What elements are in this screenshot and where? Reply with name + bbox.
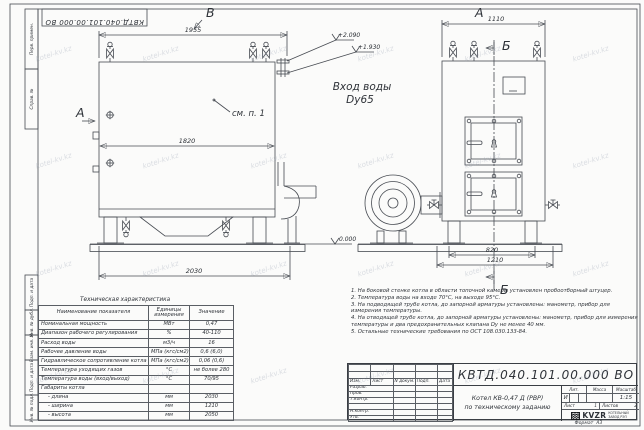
roof-valve-icon bbox=[107, 42, 114, 62]
spec-row: Температура воды (вход/выход)°С70/95 bbox=[39, 375, 234, 384]
spec-unit: м3/ч bbox=[149, 339, 190, 348]
frame-label: Инв. № дубл. bbox=[29, 308, 35, 337]
sheet-value: 1 bbox=[594, 404, 597, 409]
note-line: 5. Остальные технические требования по О… bbox=[351, 329, 638, 335]
spec-row: - длинамм2030 bbox=[39, 393, 234, 402]
side-view: 1110 820 1210 А Б Б bbox=[358, 5, 562, 297]
roof-valve-icon bbox=[471, 41, 478, 61]
scale-label: Масштаб bbox=[613, 386, 639, 394]
dim-side-top: 1110 bbox=[488, 15, 505, 23]
spec-unit: мм bbox=[149, 393, 190, 402]
spec-value: 16 bbox=[190, 339, 234, 348]
spec-value: 40-110 bbox=[190, 330, 234, 339]
note-line: 2. Температура воды на входе 70°С, на вы… bbox=[351, 295, 638, 301]
spec-value: 2030 bbox=[190, 393, 234, 402]
drawing-title: Котел КВ-0,47 Д (РВР) по техническому за… bbox=[453, 386, 561, 421]
frame-label: Справ. № bbox=[29, 88, 35, 109]
frame-label: Перв. примен. bbox=[29, 23, 35, 55]
spec-param: Гидравлическое сопротивление котла bbox=[39, 357, 149, 366]
lifting-lug-icon bbox=[106, 159, 114, 167]
dim-side-inner: 820 bbox=[486, 246, 498, 254]
spec-header-param: Наименование показателя bbox=[39, 306, 149, 321]
lit-cell bbox=[570, 394, 578, 403]
spec-param: Температура воды (вход/выход) bbox=[39, 375, 149, 384]
kvzr-logo-icon bbox=[571, 412, 580, 420]
spec-value: 0,06 (0,6) bbox=[190, 357, 234, 366]
dim-front-mid: 1820 bbox=[179, 137, 196, 145]
spec-param: Рабочее давление воды bbox=[39, 348, 149, 357]
drawing-title-line1: Котел КВ-0,47 Д (РВР) bbox=[472, 396, 543, 403]
sheets-label: Листов bbox=[602, 404, 618, 409]
drawing-title-line2: по техническому заданию bbox=[464, 405, 550, 412]
note-line: 4. На отводящей трубе котла, до запорной… bbox=[351, 315, 638, 328]
view-label-A-side: А bbox=[474, 5, 484, 20]
inlet-size-label: Dy65 bbox=[346, 94, 374, 106]
company-subtitle: КОТЕЛЬНЫЙ ЗАВОД РЭП bbox=[608, 412, 628, 419]
dim-front-top: 1955 bbox=[185, 26, 202, 34]
frame-label: Подп. и дата bbox=[29, 278, 35, 308]
spec-unit: °С bbox=[149, 375, 190, 384]
side-valve-icon bbox=[545, 200, 560, 208]
spec-value: 0,47 bbox=[190, 321, 234, 330]
drain-valve-icon bbox=[223, 217, 230, 237]
spec-param: - длина bbox=[39, 393, 149, 402]
spec-row: Габариты котла bbox=[39, 384, 234, 393]
spec-value: 1210 bbox=[190, 402, 234, 411]
notes: 1. На боковой стенке котла в области топ… bbox=[351, 288, 638, 336]
company-cell: KVZR КОТЕЛЬНЫЙ ЗАВОД РЭП bbox=[562, 410, 638, 421]
format-note: Формат А3 bbox=[540, 421, 637, 426]
dim-side-outer: 1210 bbox=[487, 256, 504, 264]
spec-param: Габариты котла bbox=[39, 384, 149, 393]
tech-spec-table: Наименование показателя Единицы измерени… bbox=[38, 305, 234, 421]
spec-param: - высота bbox=[39, 411, 149, 420]
sheets-value: 2 bbox=[634, 404, 637, 409]
drawing-sheet: Перв. примен. Справ. № Подп. и дата Инв.… bbox=[0, 0, 644, 430]
frame-label: Инв. № подл. bbox=[29, 393, 35, 423]
callout-see-note: см. п. 1 bbox=[232, 109, 265, 119]
lit-label: Лит. bbox=[562, 386, 587, 394]
lit-value: И bbox=[562, 394, 570, 403]
spec-row: - ширинамм1210 bbox=[39, 402, 234, 411]
title-block: Изм. Лист N докум. Подп. Дата Разраб. Пр… bbox=[347, 363, 637, 420]
company-name: KVZR bbox=[582, 411, 606, 420]
spec-param: - ширина bbox=[39, 402, 149, 411]
front-view: 1955 1820 2030 В А см. п. 1 0.000 +2.090… bbox=[75, 5, 391, 280]
tb-col-izm: Изм. bbox=[349, 379, 371, 386]
mass-label: Масса bbox=[587, 386, 613, 394]
roof-valve-icon bbox=[263, 42, 270, 62]
spec-value bbox=[190, 384, 234, 393]
note-line: 1. На боковой стенке котла в области топ… bbox=[351, 288, 638, 294]
spec-value: 2050 bbox=[190, 411, 234, 420]
tb-row-label: Утв. bbox=[349, 416, 394, 422]
drain-valve-icon bbox=[123, 217, 130, 237]
spec-row: Гидравлическое сопротивление котлаМПа (к… bbox=[39, 357, 234, 366]
lit-cell bbox=[579, 394, 587, 403]
roof-valve-icon bbox=[534, 41, 541, 61]
doc-number: КВТД.040.101.00.000 ВО bbox=[453, 364, 638, 386]
mass-value bbox=[587, 394, 613, 403]
tb-col-doc: N докум. bbox=[393, 379, 415, 386]
tb-col-data: Дата bbox=[438, 379, 453, 386]
spec-unit: мм bbox=[149, 402, 190, 411]
spec-value: не более 280 bbox=[190, 366, 234, 375]
spec-unit: МВт bbox=[149, 321, 190, 330]
spec-unit: МПа (кгс/см2) bbox=[149, 348, 190, 357]
elev-lower: +1.930 bbox=[358, 44, 380, 51]
spec-unit bbox=[149, 384, 190, 393]
spec-header-value: Значение bbox=[190, 306, 234, 321]
frame-label: Взам. инв. № bbox=[29, 332, 35, 362]
sheet-label: Лист bbox=[564, 404, 575, 409]
spec-unit: мм bbox=[149, 411, 190, 420]
tb-col-podp: Подп. bbox=[415, 379, 437, 386]
spec-param: Температура уходящих газов bbox=[39, 366, 149, 375]
spec-param: Расход воды bbox=[39, 339, 149, 348]
spec-header-row: Наименование показателя Единицы измерени… bbox=[39, 306, 234, 321]
spec-row: Расход водым3/ч16 bbox=[39, 339, 234, 348]
tb-col-list: Лист bbox=[371, 379, 393, 386]
spec-param: Номинальная мощность bbox=[39, 321, 149, 330]
tech-spec-title: Техническая характеристика bbox=[80, 297, 170, 303]
title-block-right: Лит. Масса Масштаб И 1:15 Лист1 Листов2 … bbox=[561, 386, 638, 421]
spec-unit: МПа (кгс/см2) bbox=[149, 357, 190, 366]
dim-front-bottom: 2030 bbox=[186, 267, 203, 275]
roof-valve-icon bbox=[250, 42, 257, 62]
inlet-label: Вход воды bbox=[333, 81, 392, 93]
spec-row: Номинальная мощностьМВт0,47 bbox=[39, 321, 234, 330]
spec-value: 0,6 (6,0) bbox=[190, 348, 234, 357]
view-label-B: В bbox=[206, 5, 215, 20]
spec-row: Температура уходящих газов°Сне более 280 bbox=[39, 366, 234, 375]
spec-unit: % bbox=[149, 330, 190, 339]
roof-valve-icon bbox=[450, 41, 457, 61]
spec-row: - высотамм2050 bbox=[39, 411, 234, 420]
spec-value: 70/95 bbox=[190, 375, 234, 384]
elev-ground: 0.000 bbox=[339, 236, 356, 243]
elev-upper: +2.090 bbox=[338, 32, 360, 39]
spec-row: Рабочее давление водыМПа (кгс/см2)0,6 (6… bbox=[39, 348, 234, 357]
lifting-lug-icon bbox=[106, 111, 114, 119]
signature-grid: Изм. Лист N докум. Подп. Дата Разраб. Пр… bbox=[348, 364, 453, 422]
scale-value: 1:15 bbox=[613, 394, 639, 403]
doc-number-inverted: КВТД.040.101.00.000 ВО bbox=[45, 18, 144, 26]
spec-unit: °С bbox=[149, 366, 190, 375]
frame-label: Подп. и дата bbox=[29, 363, 35, 393]
note-line: 3. На подводящей трубе котла, до запорно… bbox=[351, 302, 638, 315]
view-label-A: А bbox=[75, 105, 85, 120]
spec-row: Диапазон рабочего регулирования%40-110 bbox=[39, 330, 234, 339]
section-label-B-top: Б bbox=[502, 38, 511, 53]
spec-header-unit: Единицы измерения bbox=[149, 306, 190, 321]
spec-param: Диапазон рабочего регулирования bbox=[39, 330, 149, 339]
